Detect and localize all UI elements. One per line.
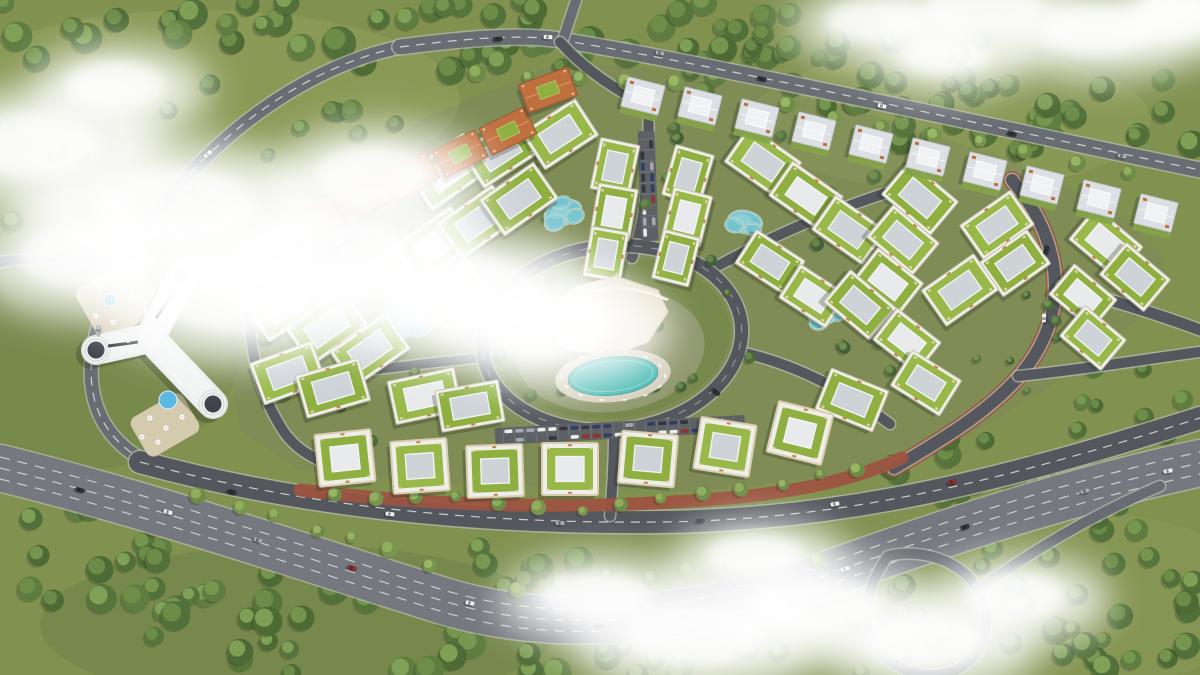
building-south-row-block	[689, 416, 757, 481]
rooftop-dome	[205, 396, 222, 413]
building-south-row-block	[614, 430, 679, 491]
rooftop-dome	[88, 342, 105, 359]
scene-svg	[0, 0, 1200, 675]
building-south-row-block	[386, 438, 450, 498]
building-south-row-block	[538, 443, 598, 499]
building-south-row-block	[462, 444, 524, 502]
building-south-row-block	[310, 429, 376, 491]
aerial-render-stage	[0, 0, 1200, 675]
terrace-pool	[159, 391, 177, 409]
pool-lounger	[664, 374, 666, 378]
